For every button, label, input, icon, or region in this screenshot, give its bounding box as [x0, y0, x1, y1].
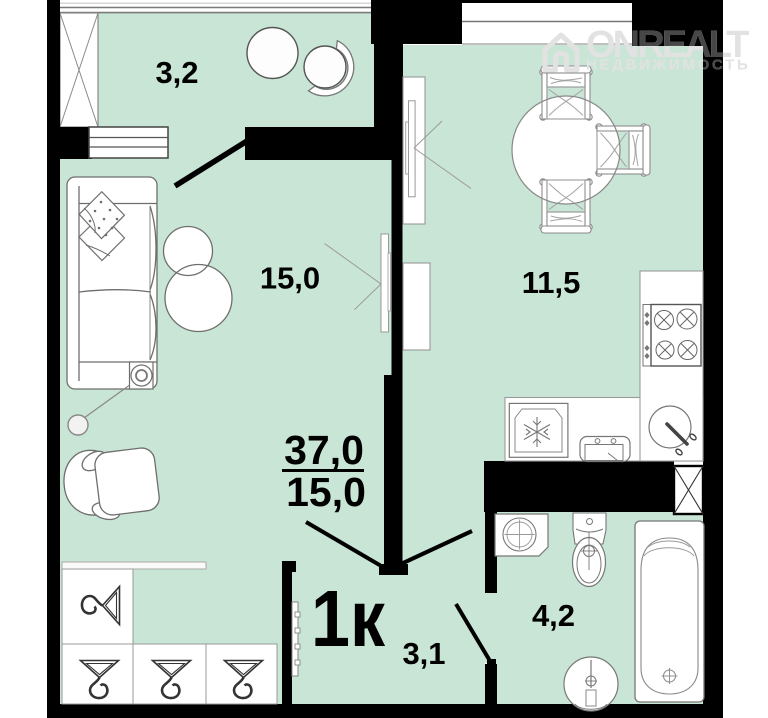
svg-text:15,0: 15,0: [286, 469, 366, 515]
svg-text:37,0: 37,0: [284, 427, 364, 473]
svg-text:4,2: 4,2: [532, 598, 575, 633]
svg-text:1к: 1к: [311, 574, 386, 663]
svg-text:11,5: 11,5: [522, 265, 581, 300]
svg-text:3,1: 3,1: [402, 636, 445, 671]
svg-text:15,0: 15,0: [260, 261, 320, 296]
svg-text:3,2: 3,2: [155, 55, 198, 90]
